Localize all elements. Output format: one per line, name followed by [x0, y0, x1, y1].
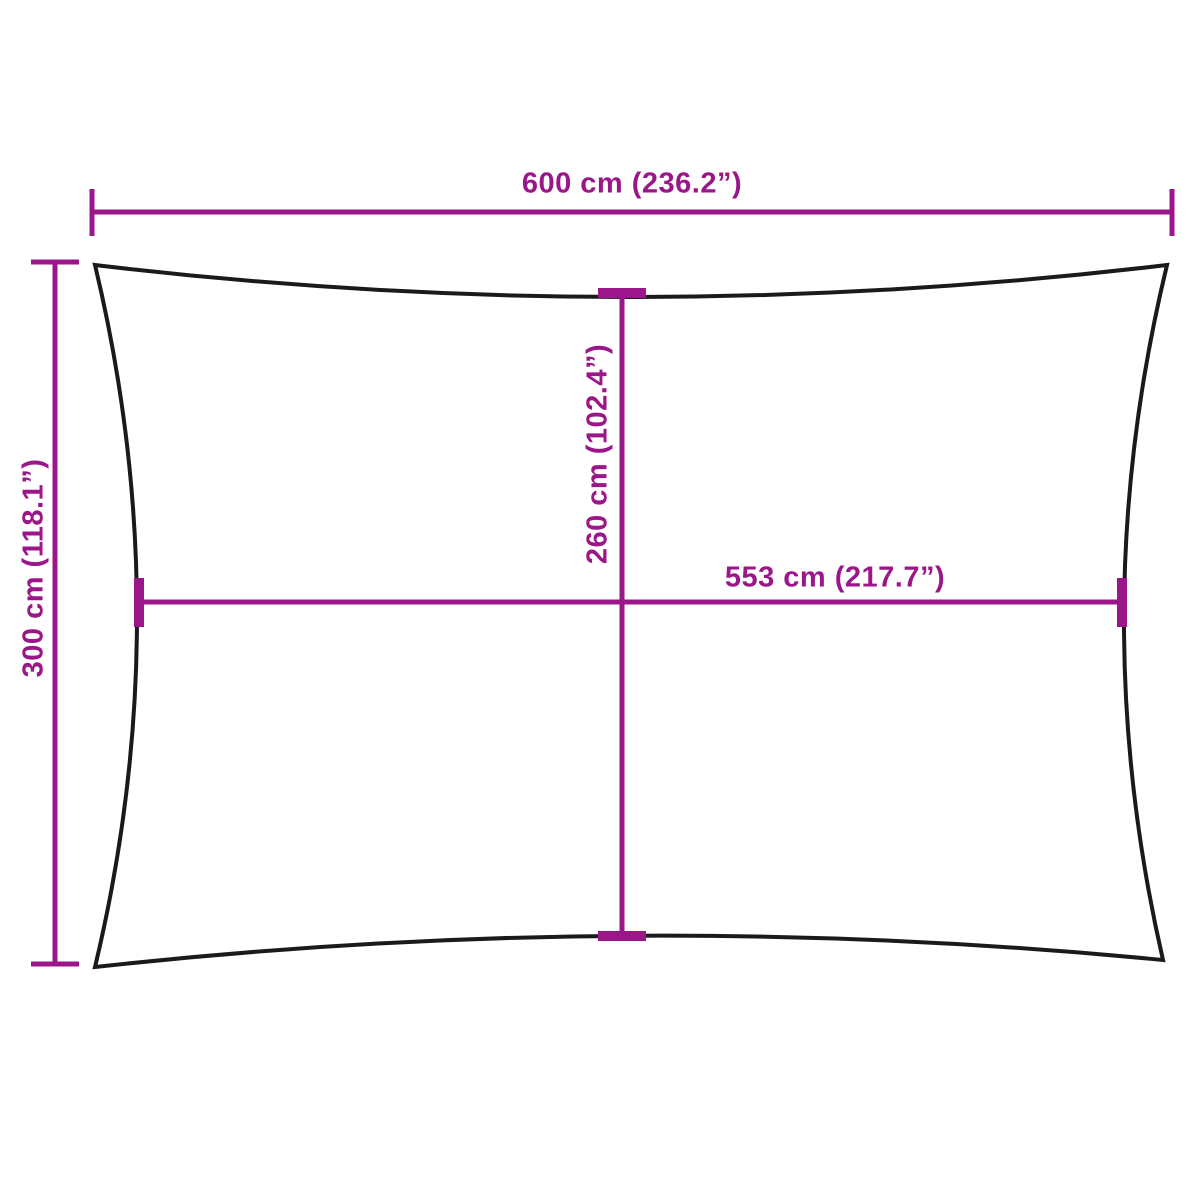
left-height-label: 300 cm (118.1”) — [20, 459, 49, 678]
sail-outline — [95, 265, 1167, 967]
center-width-label: 553 cm (217.7”) — [725, 564, 945, 593]
dimension-diagram: 600 cm (236.2”) 300 cm (118.1”) 260 cm (… — [0, 0, 1200, 1200]
top-width-label: 600 cm (236.2”) — [522, 170, 742, 199]
center-height-label: 260 cm (102.4”) — [584, 344, 613, 564]
